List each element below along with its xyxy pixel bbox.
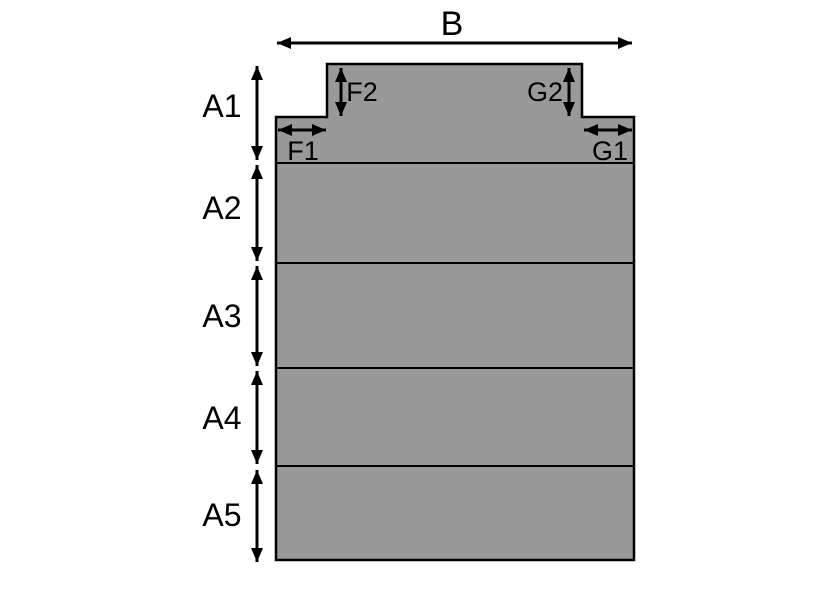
- label-a2: A2: [202, 190, 241, 226]
- profile-shape: [276, 64, 634, 560]
- label-g1: G1: [592, 136, 628, 166]
- label-b: B: [441, 5, 464, 43]
- label-a3: A3: [202, 298, 241, 334]
- label-a4: A4: [202, 400, 241, 436]
- dimension-diagram: B A1 A2 A3 A4 A5 F2 G2 F1 G1: [0, 0, 840, 605]
- label-a5: A5: [202, 497, 241, 533]
- label-g2: G2: [527, 77, 563, 107]
- label-a1: A1: [202, 88, 241, 124]
- diagram-svg: B A1 A2 A3 A4 A5 F2 G2 F1 G1: [0, 0, 840, 605]
- label-f1: F1: [287, 136, 319, 166]
- label-f2: F2: [346, 77, 378, 107]
